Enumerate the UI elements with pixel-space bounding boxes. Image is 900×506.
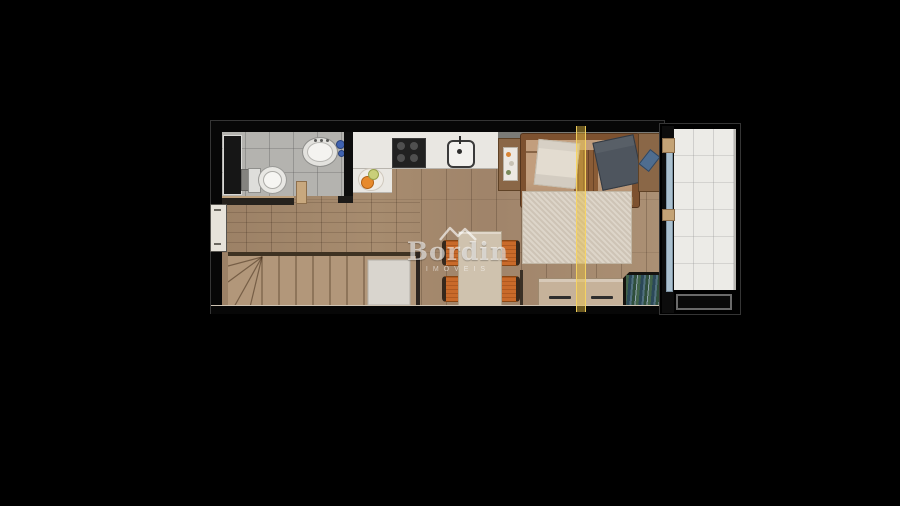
section-line-marker bbox=[576, 126, 586, 312]
cooktop bbox=[392, 138, 426, 168]
faucet-icon bbox=[326, 139, 329, 142]
door-frame-tab bbox=[662, 209, 675, 221]
faucet-icon bbox=[320, 139, 323, 142]
kitchen-faucet-icon bbox=[459, 136, 461, 144]
dining-table bbox=[458, 231, 502, 313]
toilet bbox=[258, 166, 287, 194]
window bbox=[210, 204, 227, 252]
door-frame-tab bbox=[662, 138, 675, 153]
stair-wall-edge bbox=[520, 270, 523, 306]
bathroom-kitchen-wall bbox=[344, 132, 353, 196]
dining-chair bbox=[499, 240, 520, 266]
decor-tray bbox=[503, 147, 518, 181]
kitchen-counter bbox=[353, 132, 500, 169]
balcony-planter bbox=[676, 294, 732, 310]
throw-blanket-light bbox=[534, 139, 581, 189]
kitchen-faucet-icon bbox=[457, 149, 462, 154]
shower-shaft bbox=[223, 135, 242, 195]
hallway-floor bbox=[222, 200, 420, 252]
balcony-floor bbox=[674, 129, 736, 290]
wall-top bbox=[211, 121, 664, 132]
dining-chair bbox=[499, 276, 520, 302]
bathroom-wall bbox=[222, 196, 294, 205]
bathroom-wall-stub bbox=[338, 196, 353, 203]
stairs bbox=[228, 252, 420, 307]
kitchen-sink bbox=[447, 140, 475, 168]
green-fruit bbox=[368, 169, 379, 180]
faucet-icon bbox=[314, 139, 317, 142]
bathroom-door bbox=[296, 181, 307, 204]
wall-bottom bbox=[211, 305, 664, 314]
floorplan-render: Bordin IMÓVEIS bbox=[0, 0, 900, 506]
